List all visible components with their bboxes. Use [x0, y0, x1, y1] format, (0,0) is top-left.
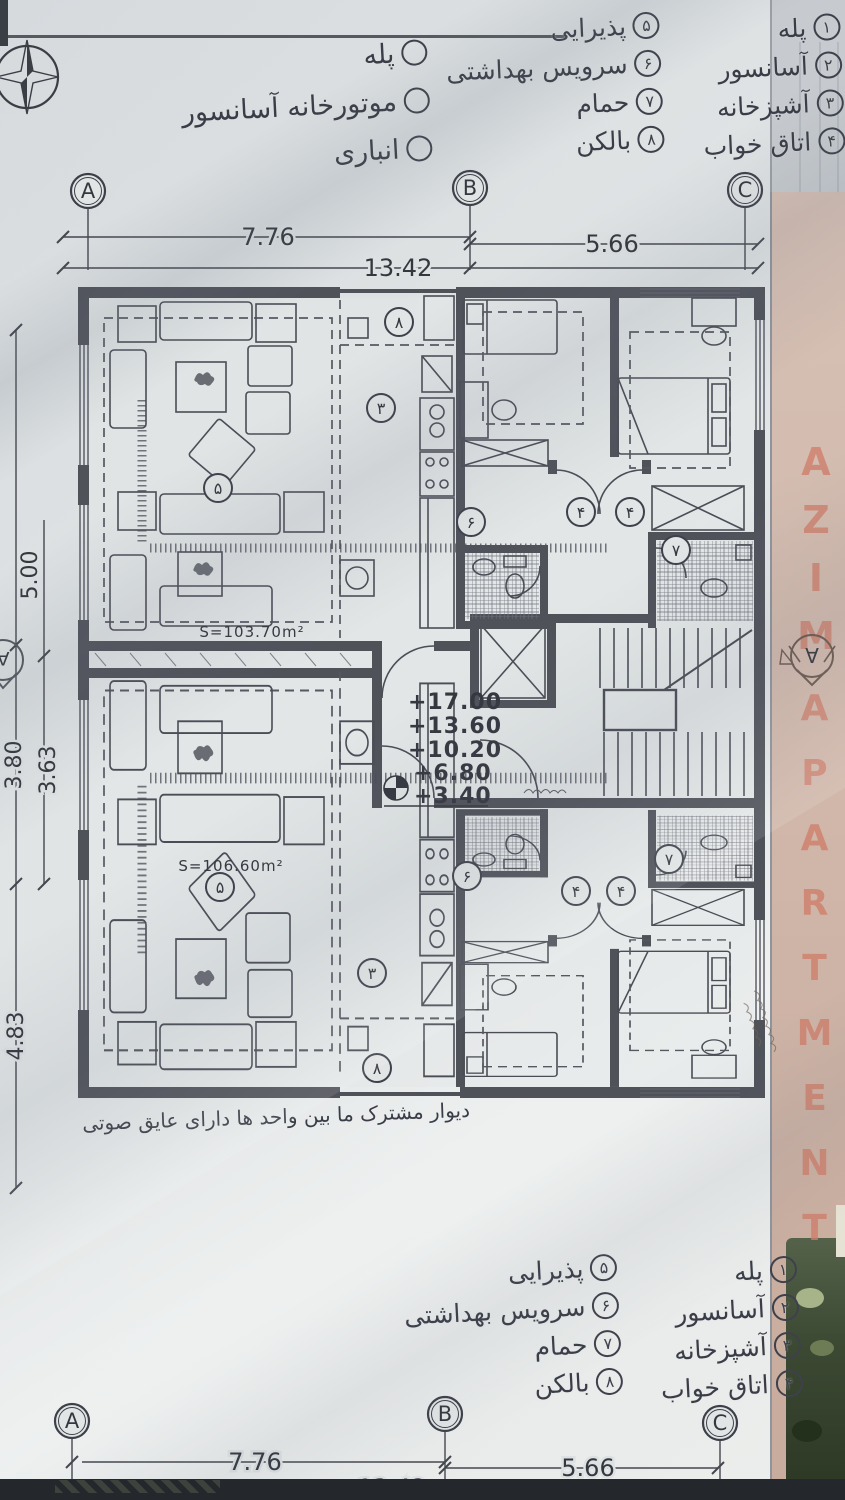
floor-plan-photo: AZIM APARTMENT A B C: [0, 0, 845, 1500]
section-marker-left: A: [0, 640, 23, 688]
dims-left: 5.00 3.80 3.63 4.83: [2, 324, 61, 1194]
legend-number-4: ۴: [818, 126, 845, 154]
dim-top-ab: 7.76: [241, 223, 294, 251]
legend-number-7: ۷: [593, 1329, 621, 1357]
legend-label: پله: [777, 13, 807, 43]
grid-top: A B C 7.76 5.66 13.42: [57, 171, 764, 282]
legend-label: بالکن: [533, 1368, 589, 1400]
legend-item-stairs: ۱پله: [698, 7, 841, 51]
grid-bubble-a: A: [65, 1409, 80, 1433]
legend-label: موتورخانه آسانسور: [181, 86, 398, 128]
legend-top-items-5-8: ۵پذیرایی ۶سرویس بهداشتی ۷حمام ۸بالکن: [443, 5, 665, 166]
legend-number-6: ۶: [591, 1291, 619, 1319]
dim-left-3-80: 3.80: [2, 741, 27, 790]
area-label-lower-unit: S=106.60m²: [178, 857, 283, 875]
grid-bottom: A B C 7.76 5.66 13.42: [55, 1397, 737, 1500]
grid-bubble-c: C: [738, 178, 753, 202]
dim-bottom-ab: 7.76: [228, 1448, 281, 1476]
legend-label: اتاق خواب: [661, 1370, 770, 1405]
room-3-kitchen: ۳: [368, 964, 377, 983]
level-10-20: +10.20: [408, 738, 502, 763]
room-5-living: ۵: [216, 878, 225, 897]
legend-label: انباری: [333, 134, 400, 168]
room-4-bedroom: ۴: [617, 882, 626, 901]
legend-label: اتاق خواب: [703, 127, 812, 161]
room-8-balcony: ۸: [395, 313, 404, 332]
legend-bottom-items-5-8: ۵پذیرایی ۶سرویس بهداشتی ۷حمام ۸بالکن: [401, 1247, 624, 1410]
room-6-wc: ۶: [463, 867, 472, 886]
room-7-bath: ۷: [665, 850, 674, 869]
legend-number-1: ۱: [813, 12, 841, 40]
legend-label: آسانسور: [718, 51, 809, 84]
legend-label: پذیرایی: [507, 1254, 584, 1287]
legend-label: پله: [734, 1256, 764, 1286]
room-8-balcony: ۸: [373, 1059, 382, 1078]
legend-number-6: ۶: [634, 49, 662, 77]
dim-left-5-00: 5.00: [18, 551, 43, 600]
legend-item-elevator: ۲آسانسور: [700, 45, 843, 89]
legend-annex: پله موتورخانه آسانسور انباری: [114, 28, 433, 188]
room-7-bath: ۷: [672, 541, 681, 560]
level-17-00: +17.00: [408, 690, 502, 715]
dim-bottom-total: 13.42: [358, 1474, 427, 1500]
dim-bottom-bc: 5.66: [561, 1454, 614, 1482]
legend-label: سرویس بهداشتی: [445, 49, 628, 86]
section-letter: A: [0, 647, 10, 669]
legend-number-8: ۸: [637, 125, 665, 153]
legend-item-bedroom: ۴اتاق خواب: [703, 121, 845, 165]
room-4-bedroom: ۴: [626, 503, 635, 522]
grid-bubble-a: A: [81, 179, 96, 203]
legend-number-8: ۸: [595, 1367, 623, 1395]
legend-label: آسانسور: [675, 1294, 766, 1328]
legend-label: آشپزخانه: [717, 89, 811, 122]
legend-number-2: ۲: [771, 1293, 799, 1321]
legend-top-items-1-4: ۱پله ۲آسانسور ۳آشپزخانه ۴اتاق خواب: [698, 7, 845, 165]
room-4-bedroom: ۴: [572, 882, 581, 901]
legend-label: حمام: [575, 87, 629, 118]
legend-circle-icon: [401, 39, 428, 66]
section-letter: A: [805, 643, 819, 667]
dim-left-3-63: 3.63: [36, 746, 61, 795]
legend-number-4: ۴: [775, 1369, 803, 1397]
dim-left-4-83: 4.83: [4, 1012, 29, 1061]
room-4-bedroom: ۴: [577, 503, 586, 522]
room-3-kitchen: ۳: [377, 399, 386, 418]
legend-number-5: ۵: [589, 1253, 617, 1281]
legend-number-3: ۳: [816, 88, 844, 116]
legend-number-2: ۲: [815, 50, 843, 78]
north-compass-icon: [0, 40, 58, 114]
area-label-upper-unit: S=103.70m²: [199, 623, 304, 641]
grid-bubble-c: C: [713, 1411, 728, 1435]
legend-bottom-items-1-4: ۱پله ۲آسانسور ۳آشپزخانه ۴اتاق خواب: [654, 1249, 803, 1408]
legend-item-bedroom: ۴اتاق خواب: [660, 1363, 804, 1408]
section-marker-right: A: [780, 635, 835, 685]
legend-number-1: ۱: [769, 1255, 797, 1283]
dim-top-bc: 5.66: [585, 230, 638, 258]
legend-label: پذیرایی: [549, 11, 626, 43]
legend-circle-icon: [403, 87, 430, 114]
room-6-wc: ۶: [467, 513, 476, 532]
legend-label: حمام: [533, 1330, 587, 1362]
legend-number-5: ۵: [632, 11, 660, 39]
level-13-60: +13.60: [408, 714, 502, 739]
legend-circle-icon: [406, 135, 433, 162]
legend-label: آشپزخانه: [674, 1332, 768, 1366]
legend-number-7: ۷: [635, 87, 663, 115]
dim-top-total: 13.42: [364, 254, 433, 282]
legend-item-kitchen: ۳آشپزخانه: [701, 83, 844, 127]
legend-label: سرویس بهداشتی: [403, 1292, 586, 1330]
room-5-living: ۵: [214, 479, 223, 498]
legend-label: پله: [363, 38, 396, 71]
grid-bubble-b: B: [463, 176, 477, 200]
level-6-80: +6.80: [414, 761, 492, 786]
legend-label: بالکن: [575, 125, 631, 156]
legend-number-3: ۳: [773, 1331, 801, 1359]
